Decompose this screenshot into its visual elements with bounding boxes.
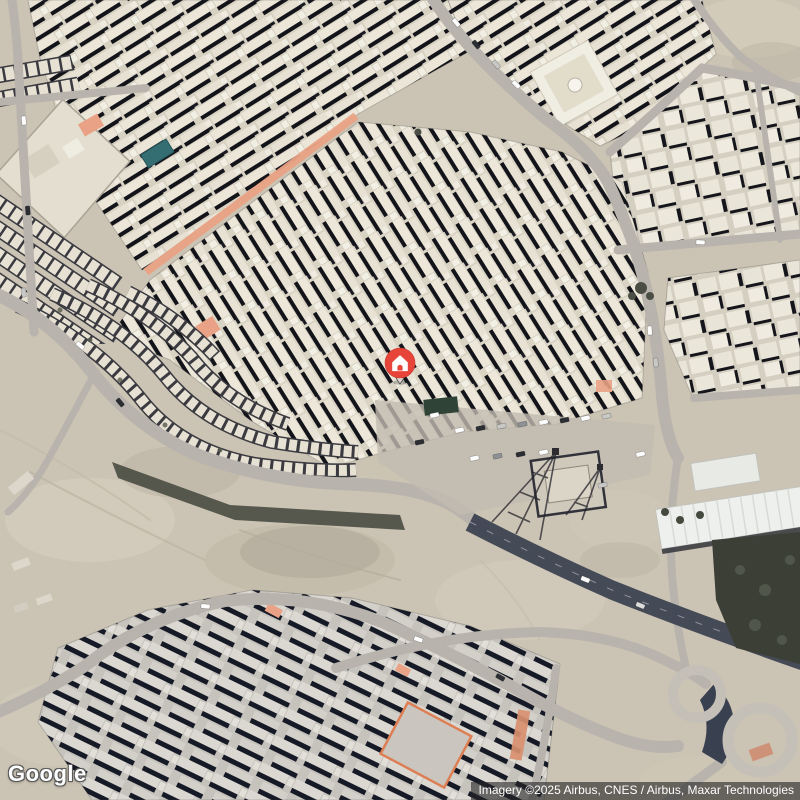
- map-canvas[interactable]: Google Imagery ©2025 Airbus, CNES / Airb…: [0, 0, 800, 800]
- google-logo[interactable]: Google: [8, 761, 87, 787]
- block-villas-e: [664, 260, 800, 396]
- home-marker[interactable]: [382, 337, 418, 385]
- attribution-text: Imagery ©2025 Airbus, CNES / Airbus, Max…: [479, 783, 794, 797]
- satellite-imagery: [0, 0, 800, 800]
- attribution: Imagery ©2025 Airbus, CNES / Airbus, Max…: [471, 782, 800, 800]
